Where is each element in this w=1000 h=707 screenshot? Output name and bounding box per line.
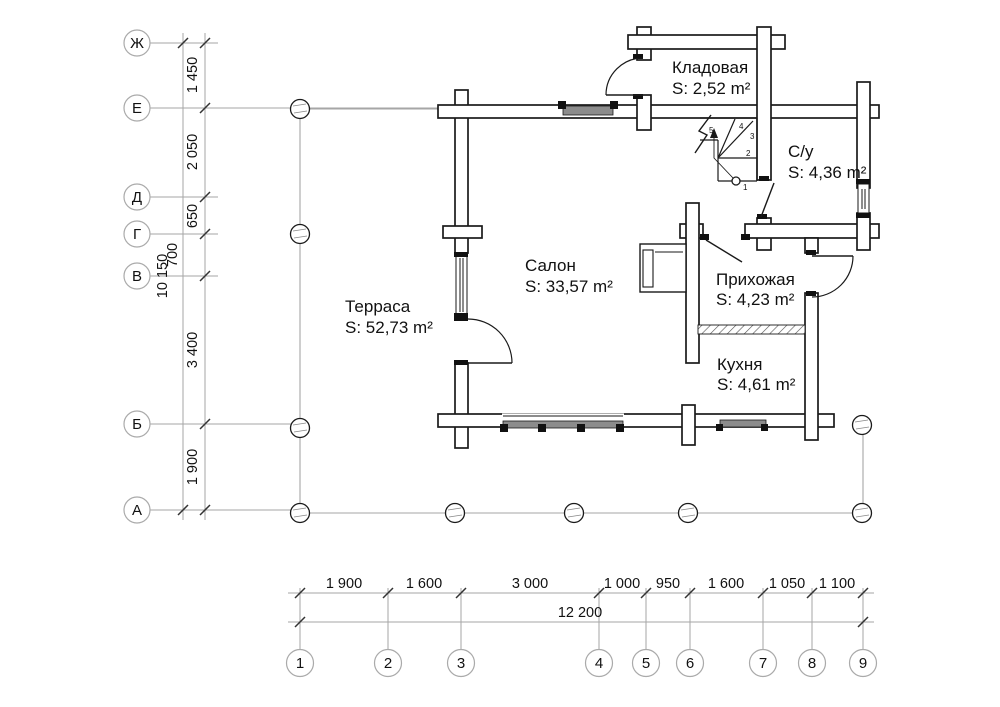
window-jamb (716, 424, 723, 431)
column (291, 225, 310, 244)
wall-segment (438, 414, 834, 427)
window (456, 253, 467, 318)
dimension-text: 1 100 (819, 576, 855, 592)
window (563, 106, 613, 115)
wall-segment (455, 363, 468, 448)
column (565, 504, 584, 523)
column (291, 419, 310, 438)
bottom-axis-dimensions: 1 900 1 600 3 000 1 000 950 1 600 1 050 … (326, 576, 855, 621)
dimension-text: 2 050 (185, 134, 201, 170)
bottom-axis-circles: 1 2 3 4 5 6 7 8 9 (287, 650, 877, 677)
window-jamb (577, 424, 585, 432)
dimension-text: 1 900 (185, 449, 201, 485)
room-label-bathroom: С/у (788, 142, 814, 161)
stair-direction-line (714, 135, 733, 178)
axis-label-row: В (132, 268, 142, 285)
room-area-hallway: S: 4,23 m² (716, 290, 795, 309)
column (853, 504, 872, 523)
room-area-salon: S: 33,57 m² (525, 277, 613, 296)
floor-plan-drawing: Ж Е Д Г В Б А 1 450 2 050 650 700 3 400 … (0, 0, 1000, 707)
column (679, 504, 698, 523)
axis-label-col: 2 (384, 655, 392, 672)
axis-label-row: Д (132, 189, 142, 206)
column (446, 504, 465, 523)
stove-firebox (643, 250, 653, 287)
stove (640, 244, 686, 292)
left-axis-dimensions: 1 450 2 050 650 700 3 400 1 900 10 150 (155, 57, 201, 485)
window-jamb (558, 101, 566, 109)
window (858, 184, 869, 213)
walls (438, 27, 879, 448)
door-jamb (759, 176, 769, 181)
window-jamb (856, 213, 870, 218)
stairs: 1 2 3 4 5 (695, 115, 757, 192)
wall-cross-joint (443, 226, 482, 238)
window (503, 421, 623, 428)
wall-segment (805, 293, 818, 440)
window (720, 420, 766, 427)
column (853, 416, 872, 435)
axis-label-col: 3 (457, 655, 465, 672)
dimension-text: 3 000 (512, 576, 548, 592)
room-label-storage: Кладовая (672, 58, 748, 77)
axis-label-col: 7 (759, 655, 767, 672)
door-arc (812, 256, 853, 297)
door-jamb (806, 291, 816, 296)
dimension-text: 1 050 (769, 576, 805, 592)
room-label-terrace: Терраса (345, 297, 411, 316)
dimension-text: 1 600 (708, 576, 744, 592)
doors (454, 54, 853, 365)
door-jamb (700, 234, 709, 240)
left-axis-circles: Ж Е Д Г В Б А (124, 30, 150, 523)
dimension-text: 1 600 (406, 576, 442, 592)
room-area-terrace: S: 52,73 m² (345, 318, 433, 337)
wall-segment (637, 95, 651, 130)
dimension-text: 1 900 (326, 576, 362, 592)
axis-label-col: 1 (296, 655, 304, 672)
stair-step-number: 1 (743, 183, 748, 192)
door-jamb (454, 360, 468, 365)
column (291, 100, 310, 119)
door-leaf (706, 240, 742, 262)
axis-label-col: 5 (642, 655, 650, 672)
axis-label-row: А (132, 502, 142, 519)
room-area-bathroom: S: 4,36 m² (788, 163, 867, 182)
window-jamb (454, 252, 468, 257)
wall-cross-joint (682, 405, 695, 445)
dimension-text: 3 400 (185, 332, 201, 368)
wall-segment (686, 203, 699, 363)
wall-segment (857, 213, 870, 250)
stair-winder-line (718, 119, 735, 158)
room-area-storage: S: 2,52 m² (672, 79, 751, 98)
axis-label-col: 4 (595, 655, 603, 672)
door-arc (606, 58, 643, 95)
door-jamb (741, 234, 750, 240)
partition-wall-hatched (698, 325, 805, 334)
door-jamb (454, 316, 468, 321)
room-label-hallway: Прихожая (716, 270, 795, 289)
dimension-text: 650 (185, 204, 201, 228)
wall-segment (757, 27, 771, 180)
stair-newel-post (732, 177, 740, 185)
axis-label-row: Е (132, 100, 142, 117)
dimension-text: 1 000 (604, 576, 640, 592)
window-jamb (500, 424, 508, 432)
dimension-total-text: 10 150 (155, 254, 171, 298)
window-jamb (610, 101, 618, 109)
window-jamb (761, 424, 768, 431)
axis-label-col: 9 (859, 655, 867, 672)
stair-step-number: 5 (709, 126, 714, 135)
stair-step-number: 3 (750, 132, 755, 141)
room-area-kitchen: S: 4,61 m² (717, 375, 796, 394)
axis-label-col: 8 (808, 655, 816, 672)
room-label-kitchen: Кухня (717, 355, 763, 374)
dimension-total-text: 12 200 (558, 605, 602, 621)
axis-label-row: Ж (130, 35, 144, 52)
stair-step-number: 4 (739, 122, 744, 131)
door-jamb (806, 250, 816, 255)
room-label-salon: Салон (525, 256, 576, 275)
door-arc (468, 319, 512, 363)
window-jamb (616, 424, 624, 432)
axis-label-col: 6 (686, 655, 694, 672)
door-leaf (761, 183, 774, 217)
column (291, 504, 310, 523)
dimension-text: 950 (656, 576, 680, 592)
wall-segment (438, 105, 879, 118)
floor-plan-page: Ж Е Д Г В Б А 1 450 2 050 650 700 3 400 … (0, 0, 1000, 707)
axis-label-row: Б (132, 416, 142, 433)
window-jamb (538, 424, 546, 432)
dimension-text: 1 450 (185, 57, 201, 93)
stair-step-number: 2 (746, 149, 751, 158)
axis-label-row: Г (133, 226, 141, 243)
